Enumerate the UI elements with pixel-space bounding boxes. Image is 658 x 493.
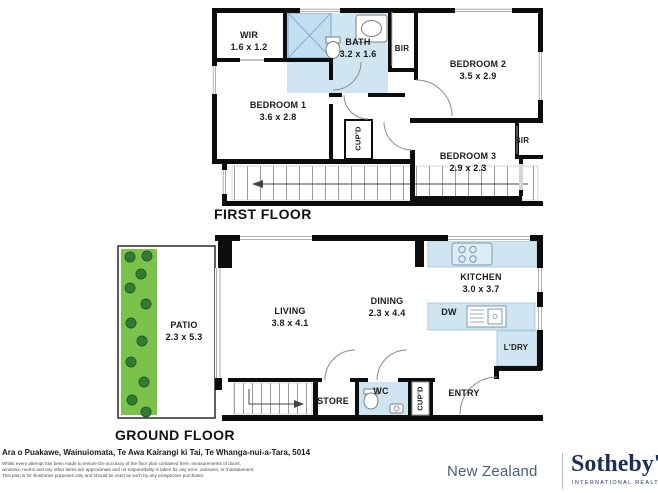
staircase-ground-floor [234,383,312,414]
window [538,52,543,100]
sliding-door [215,268,222,378]
window [240,235,312,241]
window [519,164,523,190]
bath-door-arc [344,95,368,119]
disclaimer-line: This plan is for illustrative purposes o… [2,473,204,479]
plant-icon [142,251,152,261]
window [455,8,512,13]
cupboard-first-floor [345,120,372,159]
plant-icon [125,283,135,293]
window [212,66,217,94]
brand-name: Sotheby's [571,451,658,478]
ground-floor-plan [118,235,543,421]
floor-plan-canvas [0,0,658,493]
store-door-arc [325,350,355,380]
plant-icon [141,407,151,417]
brand-subtitle: INTERNATIONAL REALTY [572,480,658,486]
toilet-icon [326,37,340,59]
brand-divider [562,453,563,489]
laundry-area [497,331,537,366]
plant-icon [136,269,146,279]
window [222,170,227,194]
plant-icon [127,395,137,405]
cupboard-ground-floor [412,382,429,415]
plant-icon [126,357,136,367]
first-floor-plan [212,8,543,206]
bathtub-icon [356,15,387,42]
plant-icon [126,318,136,328]
stove-icon [452,243,492,265]
basin-icon [390,404,403,413]
plant-icon [141,299,151,309]
patio-area [118,246,215,418]
bedroom3-door-arc [384,122,412,150]
bedroom2-door-arc [416,80,452,116]
plant-icon [137,336,147,346]
plant-icon [125,252,135,262]
staircase-first-floor [232,166,538,200]
window [537,307,543,330]
plant-icon [139,377,149,387]
sink-icon [467,306,506,327]
entry-door-arc [460,377,497,414]
window [537,268,543,292]
shower-icon [288,13,331,58]
brand-region: New Zealand [447,463,538,480]
wc-door-arc [377,350,407,380]
brand-lockup: New Zealand Sotheby's INTERNATIONAL REAL… [447,451,658,493]
toilet-icon [364,389,378,409]
property-address: Ara o Puakawe, Wainuiomata, Te Awa Kaira… [2,448,310,457]
window [448,235,530,241]
window [300,8,340,13]
floor-plan-page: { "colors": { "wall": "#0d0d0d", "wet_ar… [0,0,658,493]
